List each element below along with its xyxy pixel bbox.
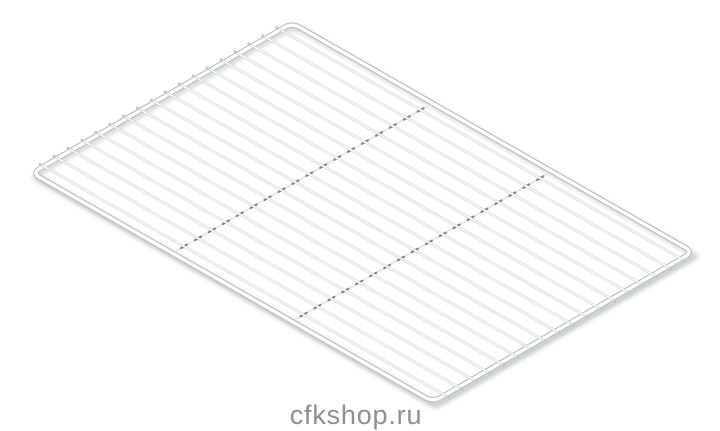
watermark: cfkshop.ru bbox=[290, 402, 423, 429]
product-image-wire-grid bbox=[0, 0, 720, 431]
product-page: cfkshop.ru bbox=[0, 0, 720, 431]
grid-frame bbox=[36, 25, 689, 400]
grid-wires bbox=[40, 28, 685, 398]
